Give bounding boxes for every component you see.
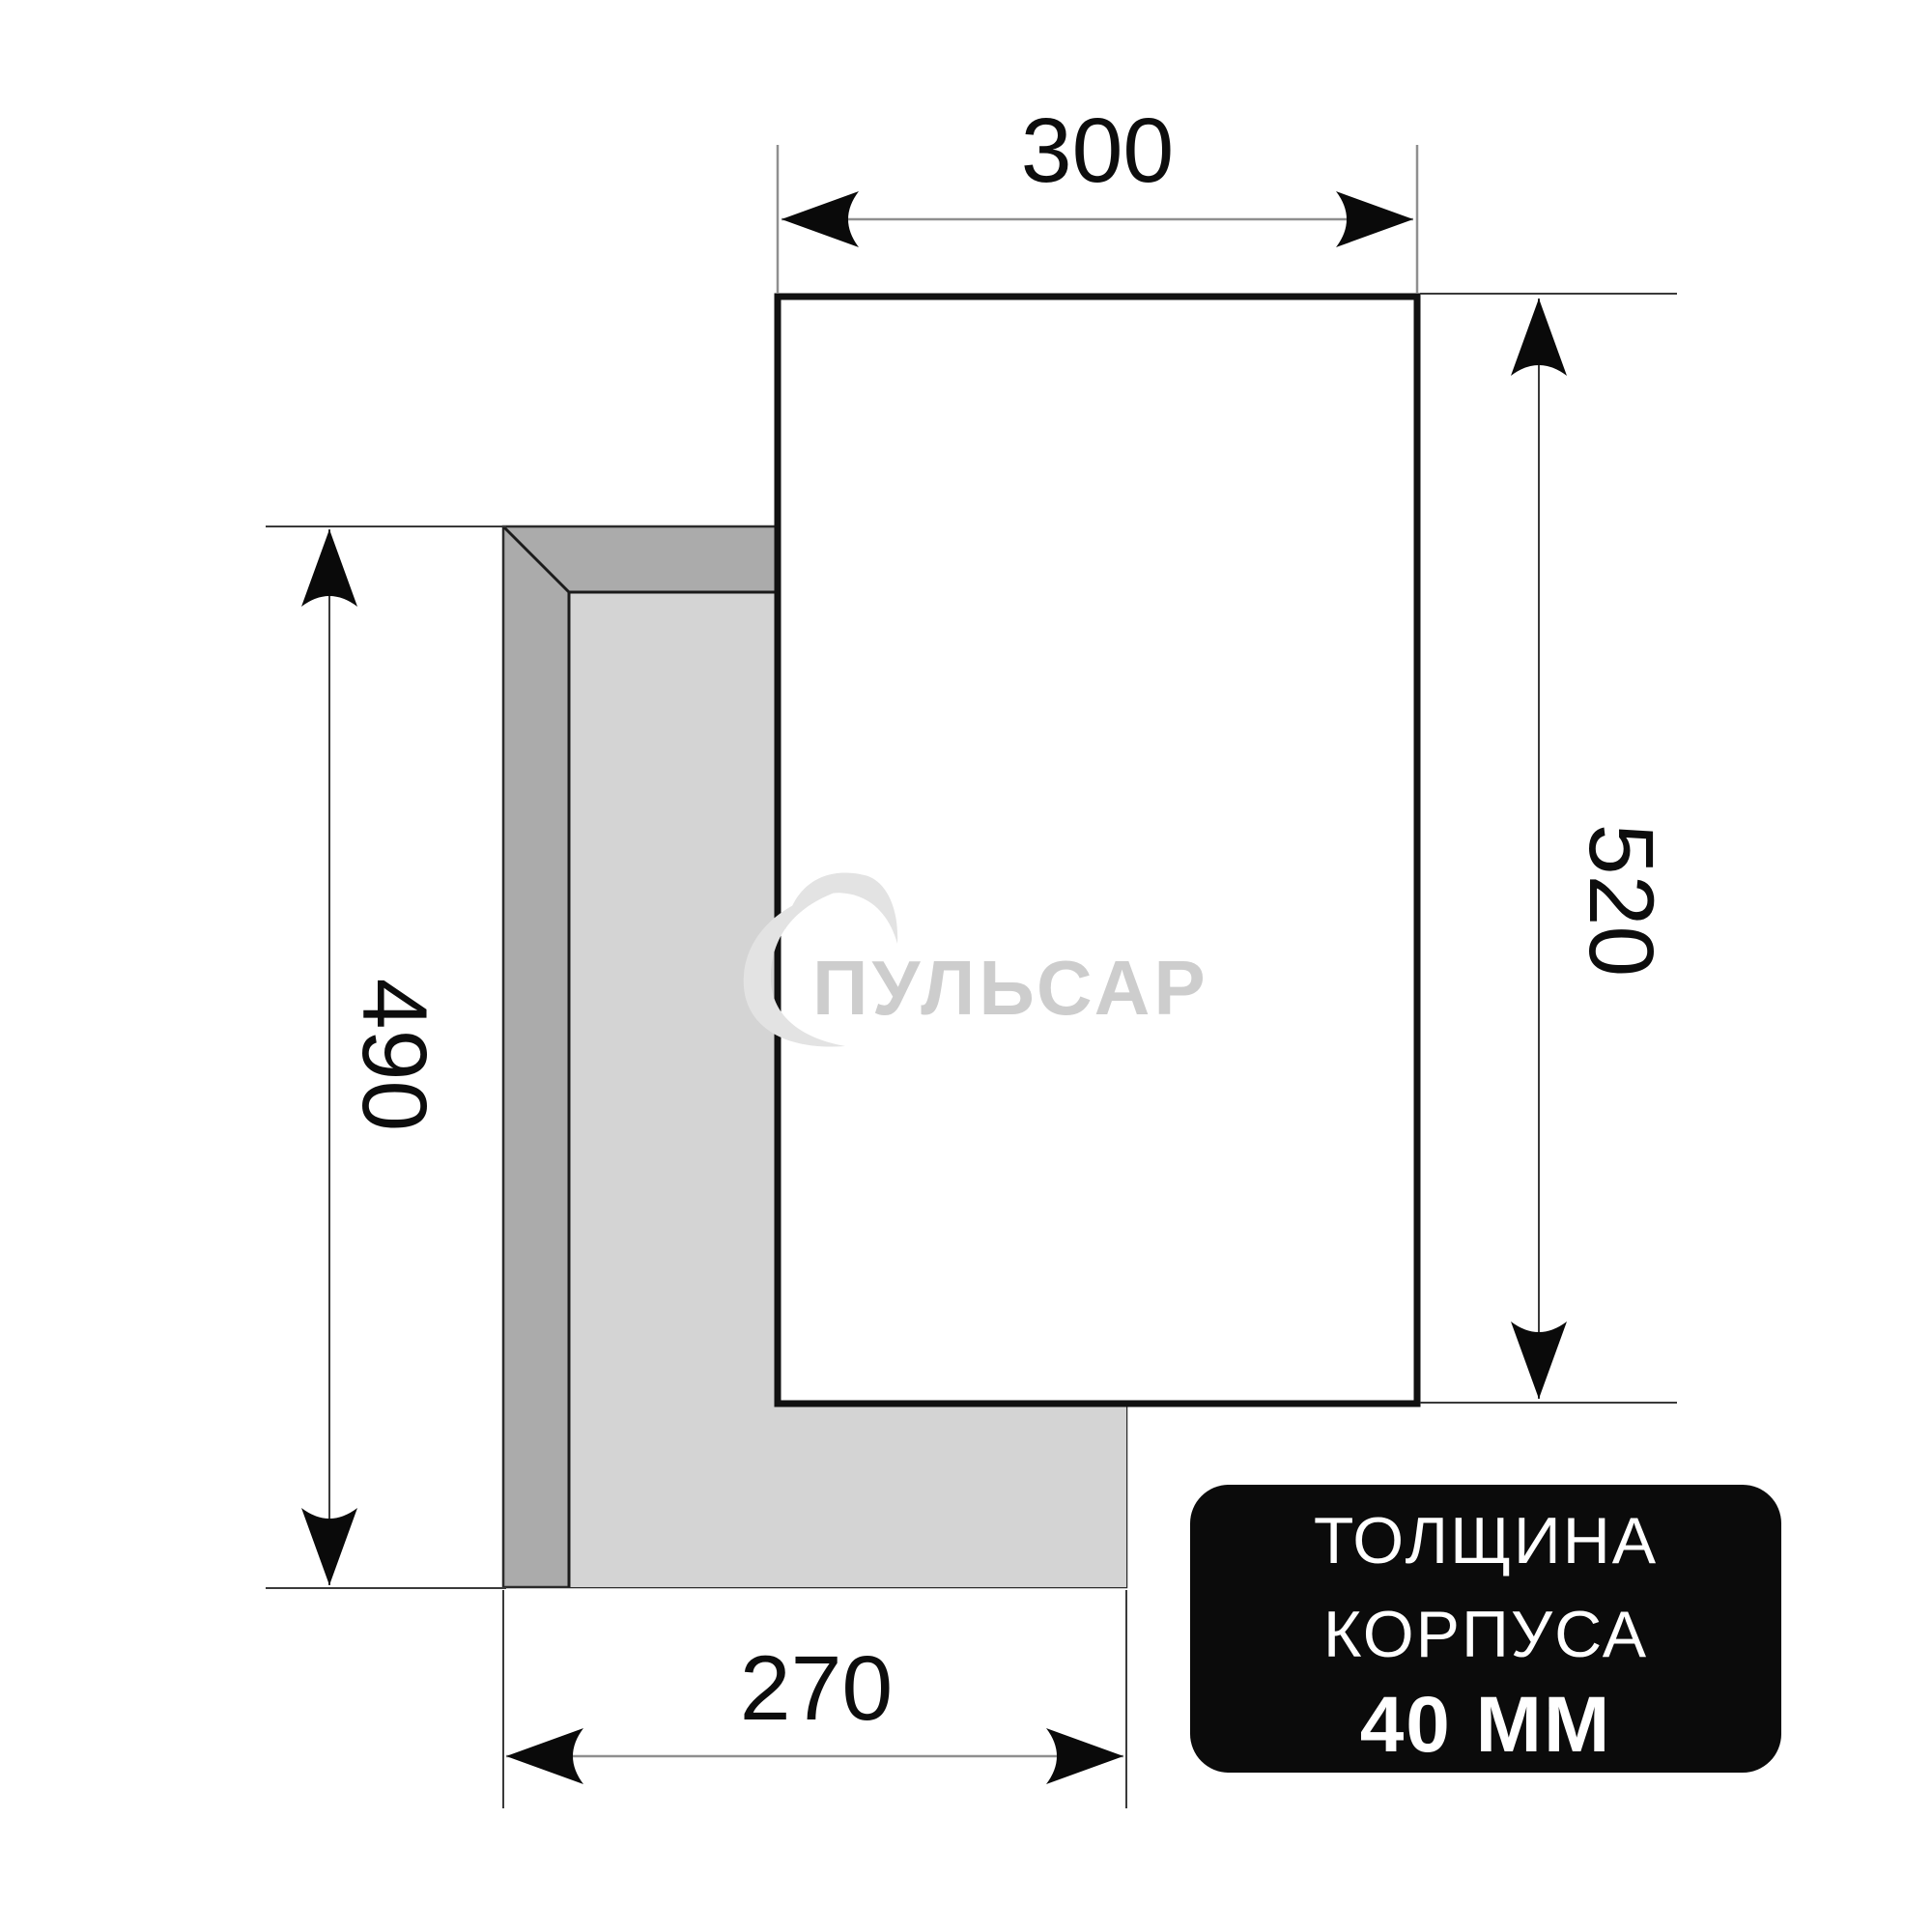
- dim-top-arrow-right-icon: [1336, 191, 1413, 247]
- dim-right-arrow-up-icon: [1511, 298, 1567, 376]
- dim-top-arrow-left-icon: [781, 191, 859, 247]
- dim-right-arrow-down-icon: [1511, 1321, 1567, 1399]
- dim-right-label: 520: [1570, 824, 1672, 978]
- thickness-badge-value: 40 ММ: [1360, 1681, 1612, 1769]
- dimension-right-height: 520: [1420, 294, 1677, 1403]
- dim-bottom-label: 270: [740, 1637, 894, 1740]
- dim-left-arrow-down-icon: [301, 1508, 357, 1585]
- dim-top-label: 300: [1021, 99, 1175, 202]
- dimension-bottom-width: 270: [503, 1590, 1126, 1808]
- appliance-body-outline: [778, 297, 1417, 1404]
- dimension-top-width: 300: [778, 99, 1417, 293]
- thickness-badge-line1: ТОЛЩИНА: [1314, 1504, 1658, 1577]
- dim-left-arrow-up-icon: [301, 529, 357, 607]
- dim-left-label: 490: [343, 979, 445, 1132]
- installation-diagram: ПУЛЬСАР 300 520 490: [0, 0, 1932, 1932]
- diagram-canvas: ПУЛЬСАР 300 520 490: [0, 0, 1932, 1932]
- dimension-left-height: 490: [266, 526, 506, 1588]
- dim-bottom-arrow-right-icon: [1046, 1728, 1123, 1784]
- watermark-brand-text: ПУЛЬСАР: [812, 945, 1209, 1031]
- thickness-badge: ТОЛЩИНА КОРПУСА 40 ММ: [1190, 1485, 1781, 1773]
- thickness-badge-line2: КОРПУСА: [1323, 1598, 1648, 1671]
- dim-bottom-arrow-left-icon: [506, 1728, 583, 1784]
